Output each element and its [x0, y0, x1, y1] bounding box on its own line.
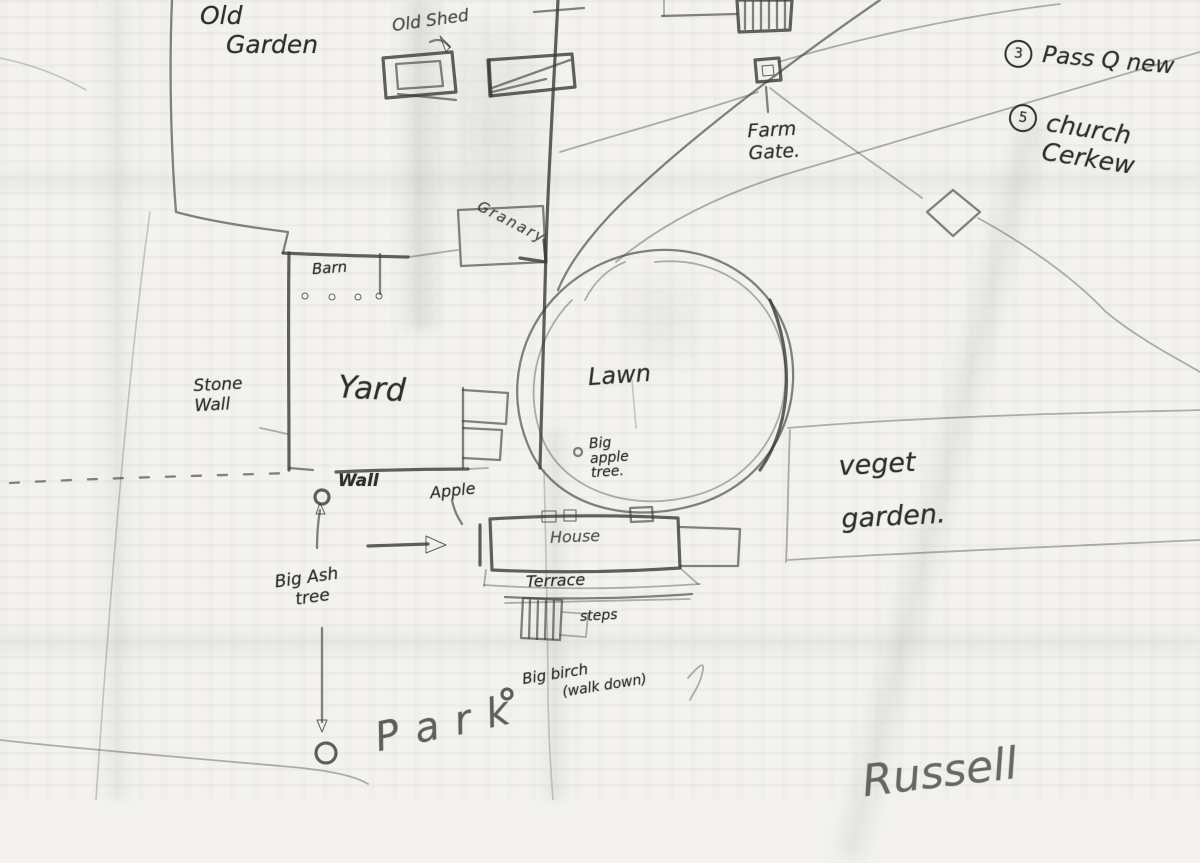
apple-tree-circle: [574, 448, 582, 456]
well-circle: [315, 490, 329, 548]
dashed-boundary: [10, 473, 288, 483]
scanned-hand-drawn-farm-map: { "colors": { "pencil": "#3a3a3a", "pape…: [0, 0, 1200, 800]
direction-arrow-right: [368, 536, 446, 553]
long-outbuilding: [488, 54, 575, 96]
house-block: [480, 507, 740, 588]
hatched-building: [662, 0, 792, 32]
road-northeast: [558, 0, 880, 290]
circled-number-badge: 3: [1003, 39, 1033, 69]
old-shed-building: [383, 36, 456, 100]
farm-track: [534, 0, 584, 800]
park-boundary: [0, 740, 368, 784]
arrow-to-park: [316, 628, 336, 763]
birch-flourish: [688, 665, 703, 700]
granary-box: [458, 206, 546, 266]
circled-number-badge: 5: [1007, 102, 1039, 134]
birch-tree-circle: [502, 689, 512, 699]
yard-walls: [260, 250, 508, 472]
wall-segment: [336, 469, 468, 472]
tilted-building: [927, 190, 980, 236]
veget-garden-boundary: [786, 410, 1200, 562]
farm-gate-square: [755, 58, 781, 112]
road-to-track: [560, 92, 758, 152]
park-tree-circle: [316, 743, 336, 763]
terrace-steps: [505, 594, 692, 640]
field-boundary: [0, 0, 288, 800]
apple-tick: [452, 500, 462, 524]
house-east-wing: [680, 527, 740, 566]
barn-box: [283, 253, 408, 300]
